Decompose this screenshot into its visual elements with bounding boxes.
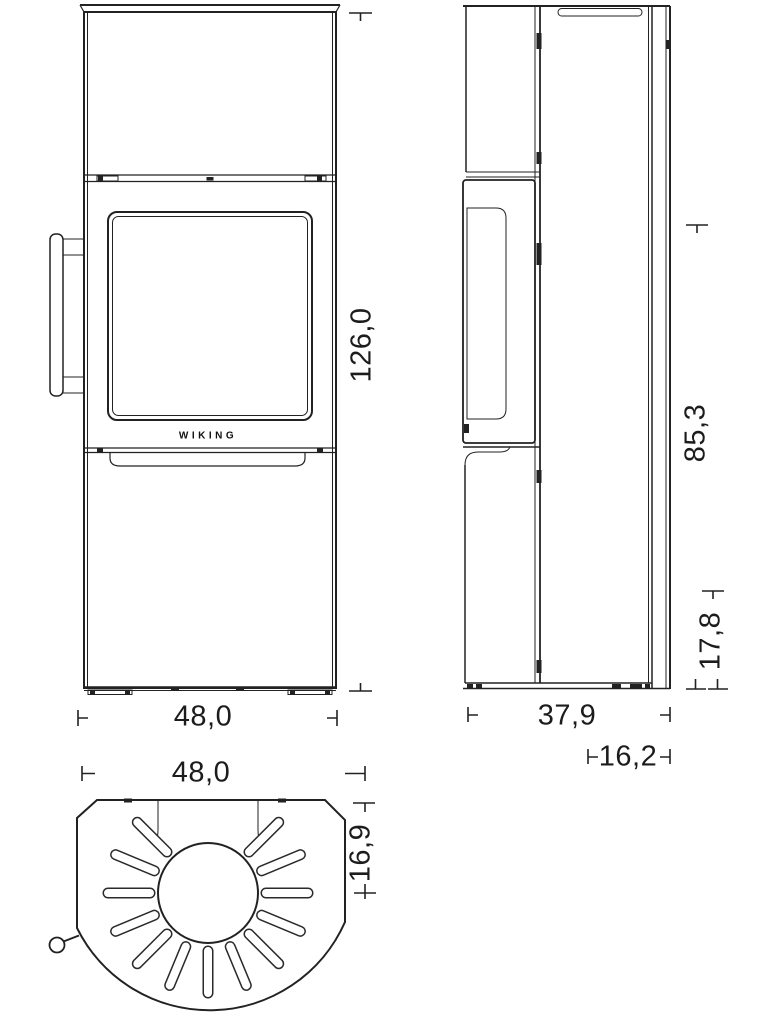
dim-side-rear-offset: 16,2: [599, 743, 657, 772]
stove-dimension-drawing: 126,0 48,0 85,3 17,8 37,9 16,2 48,0 16,9…: [0, 0, 757, 1024]
dim-front-width: 48,0: [174, 703, 232, 732]
front-door-glass: [108, 212, 312, 420]
dim-side-lower-height: 17,8: [697, 612, 726, 670]
side-view: [463, 6, 671, 689]
flue-outlet-circle: [158, 843, 258, 943]
dim-top-flue-offset: 16,9: [347, 824, 376, 882]
top-door-knob: [50, 936, 80, 953]
vent-slots: [108, 822, 308, 993]
front-view: [50, 5, 340, 695]
drawing-linework: [0, 0, 757, 1024]
front-door-handle: [50, 234, 84, 396]
dim-top-width: 48,0: [172, 759, 230, 788]
front-lower-lip: [110, 453, 305, 466]
dim-front-height: 126,0: [348, 307, 377, 382]
top-view: [50, 799, 346, 1011]
brand-logo: WIKING: [179, 431, 237, 442]
side-door-profile: [463, 180, 535, 443]
top-control-handle: [558, 9, 642, 17]
dim-side-depth: 37,9: [538, 702, 596, 731]
dim-side-upper-height: 85,3: [682, 404, 711, 462]
